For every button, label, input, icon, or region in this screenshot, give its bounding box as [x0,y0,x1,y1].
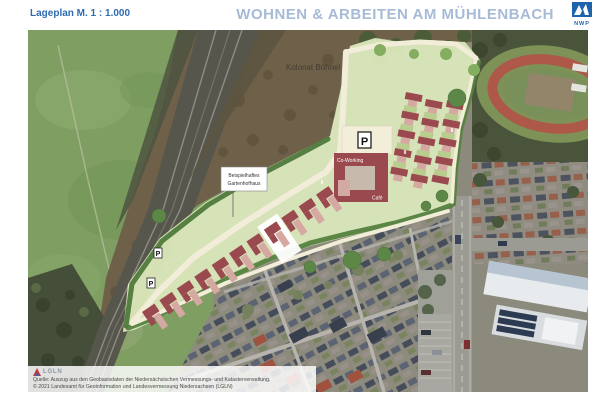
source-line-2: © 2021 Landesamt für Geoinformation und … [33,384,312,391]
parking-lot [418,270,452,392]
title-bar: Lageplan M. 1 : 1.000 WOHNEN & ARBEITEN … [0,0,600,30]
lgln-logo-icon [33,368,41,376]
lageplan-page: Lageplan M. 1 : 1.000 WOHNEN & ARBEITEN … [0,0,600,400]
example-label-line2: Gartenhofhaus [227,181,261,187]
parking-marker-label: P [156,251,161,258]
example-label-line1: Beispielhaftes [228,173,260,179]
car [464,340,470,349]
lgln-logo: LGLN [33,367,312,377]
source-strip: LGLN Quelle: Auszug aus den Geobasisdate… [28,366,316,392]
site-plan-map: P P P II II II Co-Working Café [28,30,588,392]
cafe-label: Café [372,196,383,202]
page-title: WOHNEN & ARBEITEN AM MÜHLENBACH [236,6,554,23]
coworking-label: Co-Working [337,158,364,164]
nwp-logo-text: NWP [571,21,593,27]
aerial-plan-graphic: P P P II II II Co-Working Café [28,30,588,392]
parking-marker-label: P [149,281,154,288]
scale-label: Lageplan M. 1 : 1.000 [30,8,130,19]
lgln-logo-text: LGLN [43,369,63,375]
sports-track-area [469,30,588,162]
source-lines: Quelle: Auszug aus den Geobasisdaten der… [33,377,312,390]
parking-marker-label: P [361,136,368,148]
area-name-label: Kolonat Böhnel [286,63,340,72]
car [498,241,507,246]
source-line-1: Quelle: Auszug aus den Geobasisdaten der… [33,377,312,384]
nwp-logo: NWP [571,2,593,27]
car [455,235,461,244]
nwp-logo-icon [572,2,592,17]
